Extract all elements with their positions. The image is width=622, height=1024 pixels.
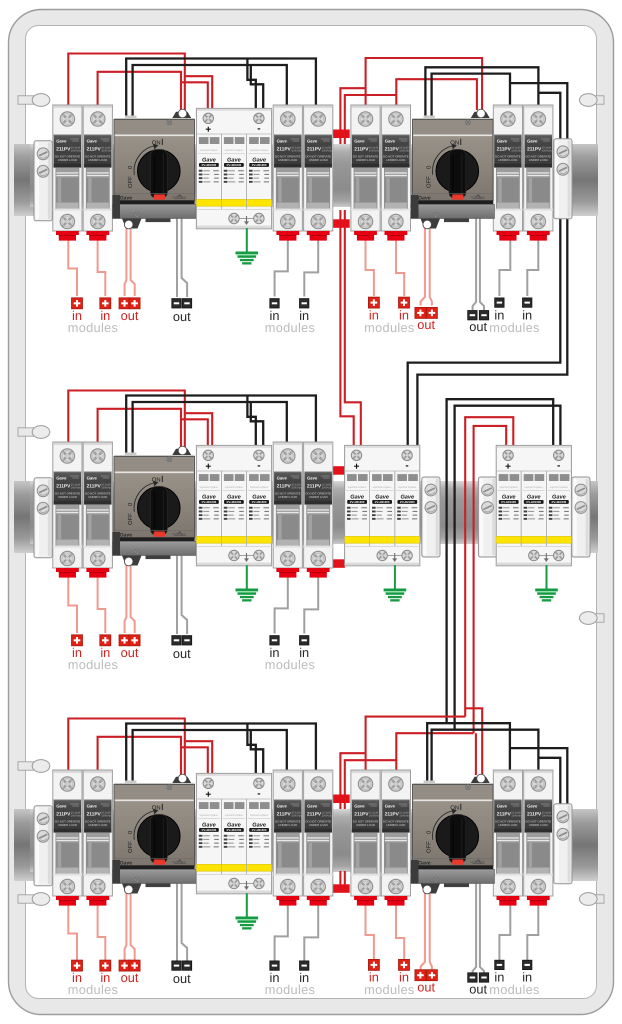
svg-text:modules: modules xyxy=(364,982,414,997)
svg-text:modules: modules xyxy=(68,657,118,672)
svg-text:out: out xyxy=(121,645,139,660)
svg-text:out: out xyxy=(417,980,435,995)
svg-text:modules: modules xyxy=(68,320,118,335)
svg-text:out: out xyxy=(173,971,191,986)
svg-text:modules: modules xyxy=(265,657,315,672)
svg-text:out: out xyxy=(469,319,487,334)
svg-text:out: out xyxy=(121,308,139,323)
svg-text:out: out xyxy=(121,970,139,985)
svg-text:modules: modules xyxy=(68,982,118,997)
svg-text:modules: modules xyxy=(364,320,414,335)
svg-text:modules: modules xyxy=(489,982,539,997)
svg-text:modules: modules xyxy=(489,320,539,335)
svg-text:out: out xyxy=(173,646,191,661)
svg-text:modules: modules xyxy=(265,982,315,997)
svg-text:out: out xyxy=(417,317,435,332)
svg-text:out: out xyxy=(469,981,487,996)
svg-text:modules: modules xyxy=(265,320,315,335)
svg-text:out: out xyxy=(173,309,191,324)
